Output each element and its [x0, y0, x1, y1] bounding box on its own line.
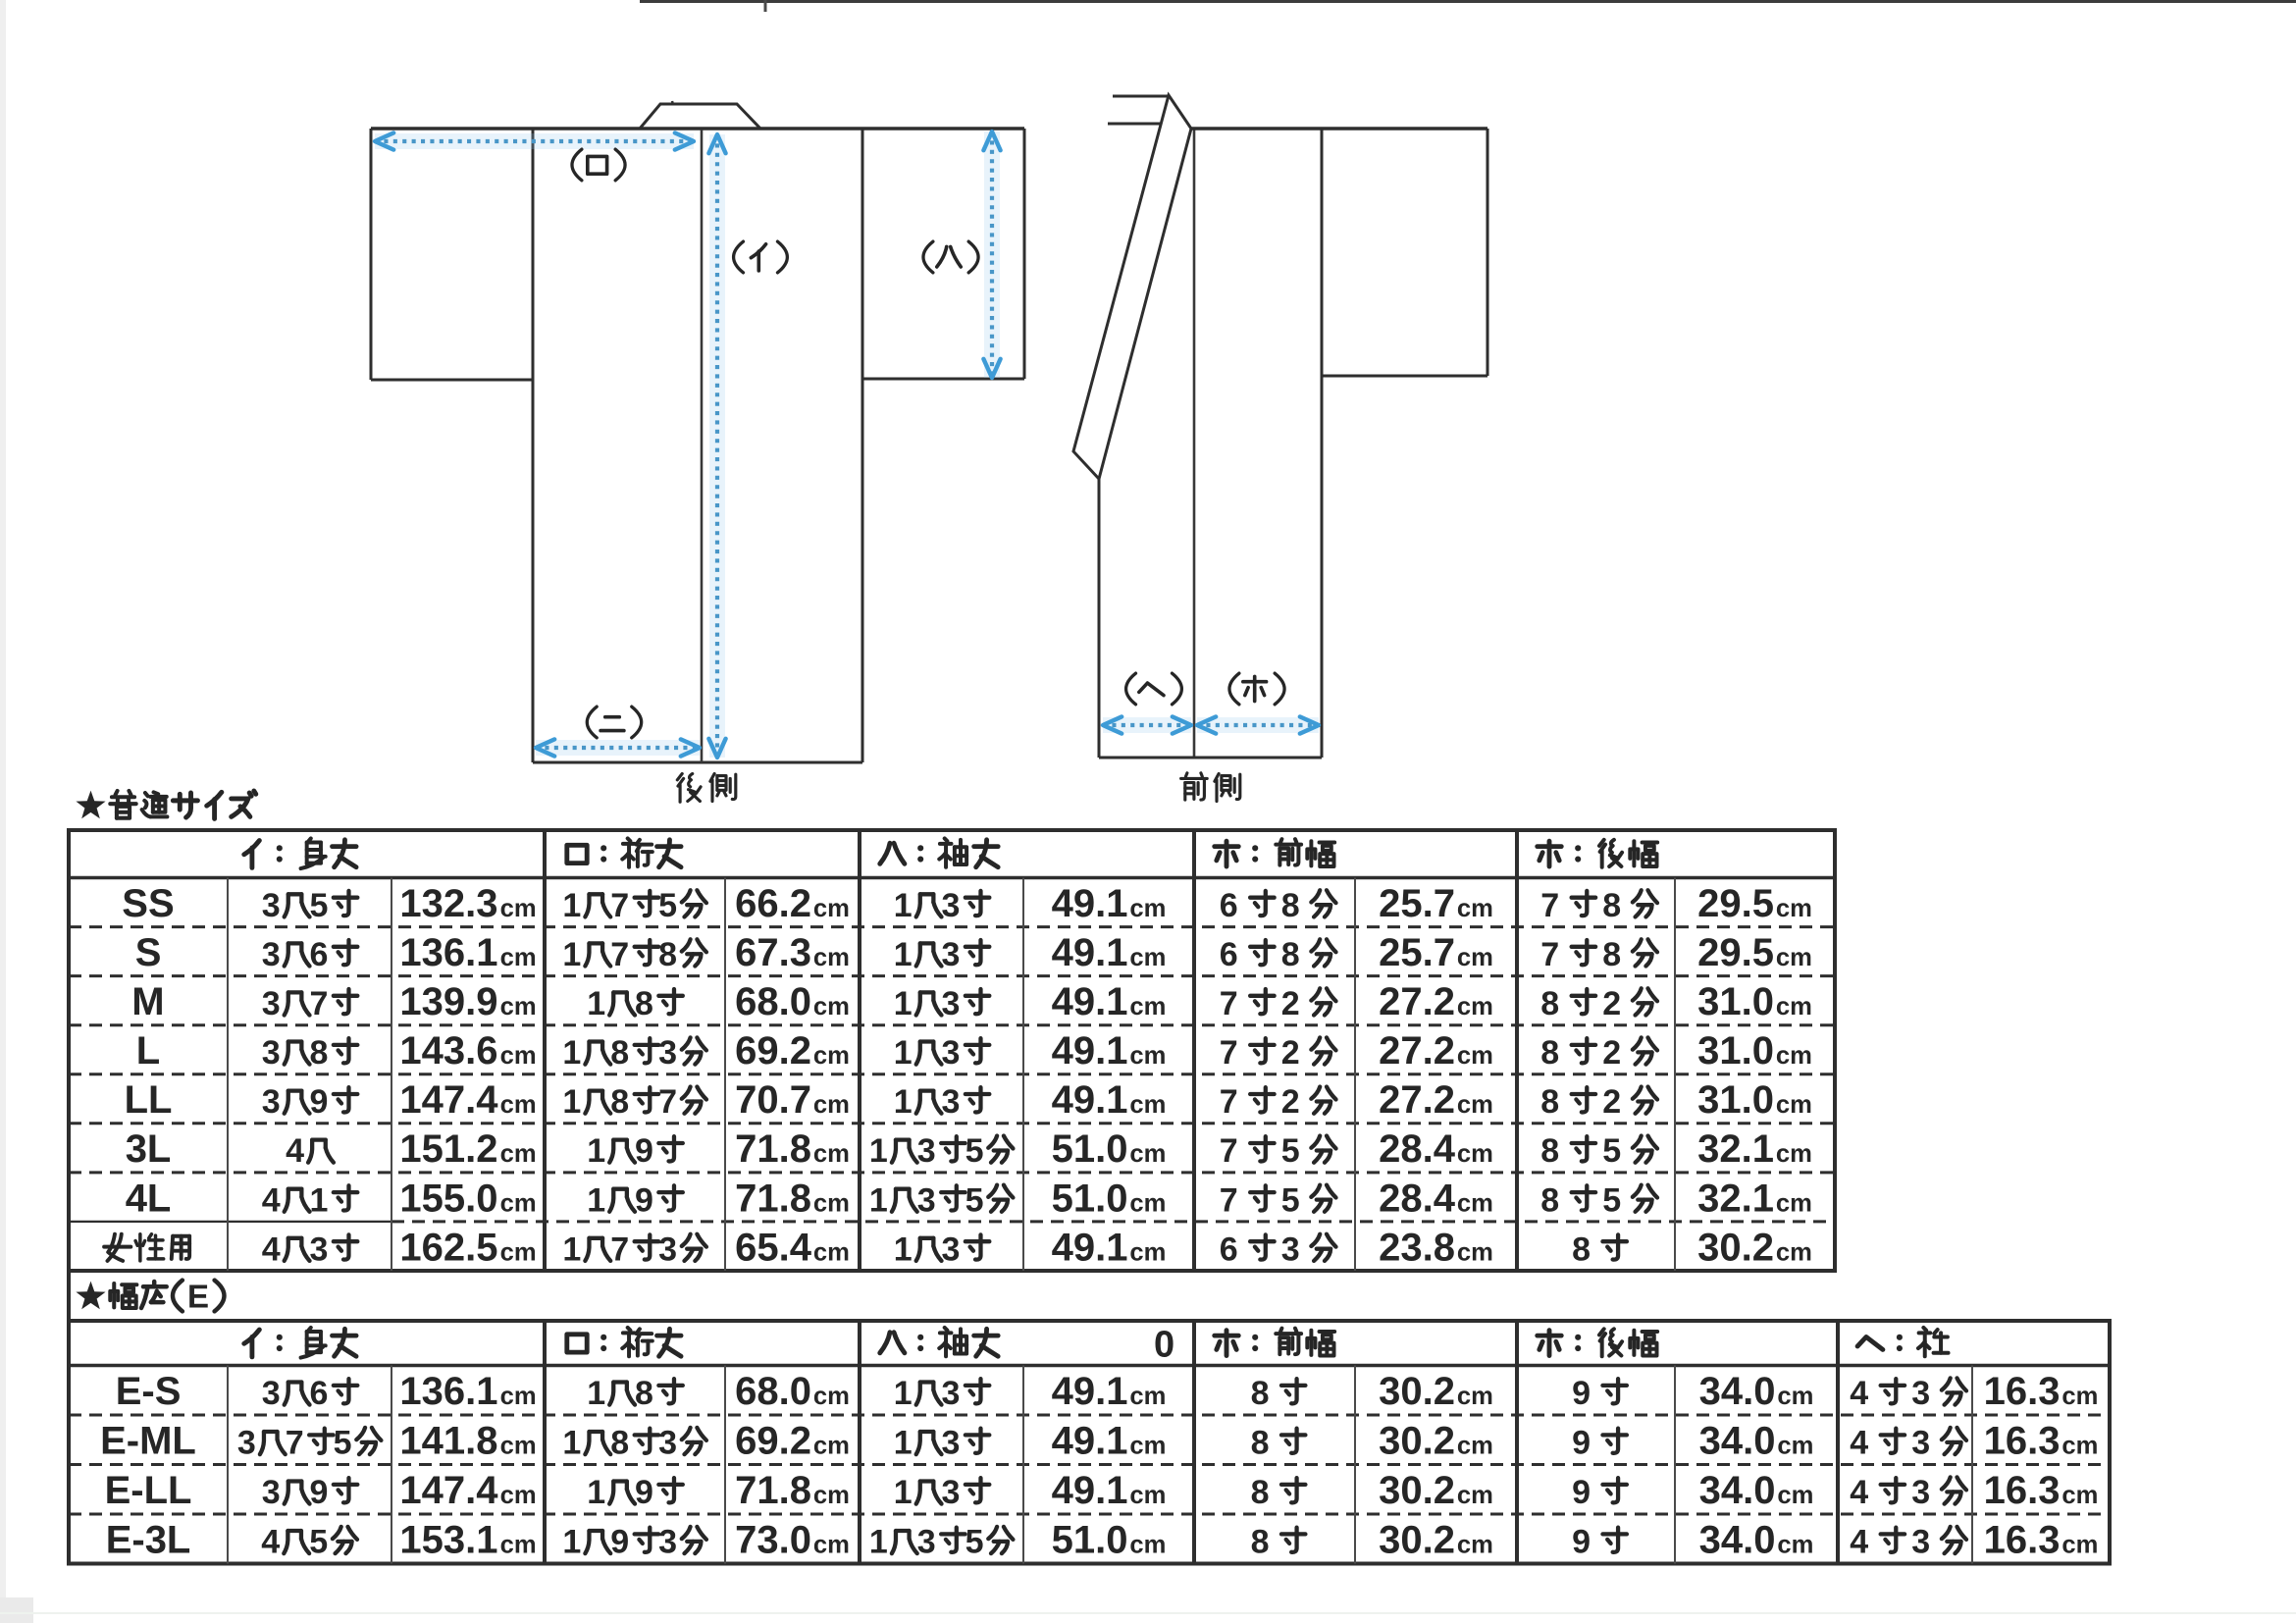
svg-text:1: 1	[587, 1474, 605, 1511]
svg-text:31.0: 31.0	[1697, 1029, 1774, 1073]
svg-text:8: 8	[1540, 1034, 1559, 1072]
svg-text:141.8: 141.8	[399, 1420, 497, 1463]
svg-text:cm: cm	[500, 1383, 537, 1410]
svg-text:2: 2	[1602, 985, 1621, 1022]
svg-text:6: 6	[310, 936, 329, 973]
svg-text:cm: cm	[813, 1532, 850, 1559]
svg-text:1: 1	[894, 985, 913, 1022]
svg-text:cm: cm	[1129, 1091, 1166, 1119]
svg-text:9: 9	[310, 1083, 329, 1121]
svg-text:3: 3	[1911, 1375, 1930, 1412]
svg-text:cm: cm	[1129, 895, 1166, 922]
svg-text:3: 3	[917, 1132, 936, 1170]
svg-text:cm: cm	[813, 895, 850, 922]
svg-text:1: 1	[310, 1181, 329, 1219]
svg-text:3: 3	[262, 985, 281, 1022]
svg-text:28.4: 28.4	[1379, 1177, 1456, 1220]
svg-text:cm: cm	[1129, 1189, 1166, 1217]
svg-text:cm: cm	[1129, 993, 1166, 1021]
svg-text:cm: cm	[1776, 895, 1812, 922]
svg-text:31.0: 31.0	[1697, 1078, 1774, 1122]
svg-text:cm: cm	[1777, 1433, 1813, 1460]
svg-text:7: 7	[658, 1083, 677, 1121]
svg-text:3: 3	[917, 1181, 936, 1219]
svg-text:73.0: 73.0	[735, 1519, 811, 1562]
svg-text:9: 9	[635, 1132, 653, 1170]
svg-text:cm: cm	[1776, 1042, 1812, 1070]
svg-text:4: 4	[262, 1181, 281, 1219]
svg-text:cm: cm	[1129, 1140, 1166, 1168]
svg-text:3: 3	[942, 936, 961, 973]
svg-text:8: 8	[1281, 936, 1300, 973]
svg-text:cm: cm	[500, 1091, 537, 1119]
svg-text:7: 7	[1540, 887, 1559, 924]
svg-text:9: 9	[1572, 1524, 1591, 1561]
svg-text:3: 3	[262, 1375, 281, 1412]
svg-text:4: 4	[286, 1132, 304, 1170]
svg-text:5: 5	[310, 887, 329, 924]
svg-text:cm: cm	[1457, 1238, 1493, 1266]
svg-text:69.2: 69.2	[735, 1029, 811, 1073]
svg-text:5: 5	[1281, 1181, 1300, 1219]
svg-text:cm: cm	[1129, 1482, 1166, 1509]
svg-text:cm: cm	[813, 944, 850, 971]
svg-text:32.1: 32.1	[1697, 1177, 1774, 1220]
svg-text:132.3: 132.3	[399, 882, 497, 925]
svg-text:7: 7	[610, 887, 629, 924]
svg-text:3: 3	[942, 1230, 961, 1268]
svg-text:16.3: 16.3	[1984, 1469, 2061, 1512]
svg-text:cm: cm	[500, 1482, 537, 1509]
svg-text:cm: cm	[813, 1091, 850, 1119]
svg-text:34.0: 34.0	[1699, 1519, 1776, 1562]
svg-text:L: L	[136, 1029, 160, 1073]
svg-text:7: 7	[1220, 1181, 1238, 1219]
svg-text:5: 5	[1281, 1132, 1300, 1170]
svg-text:71.8: 71.8	[735, 1469, 811, 1512]
svg-text:5: 5	[965, 1181, 984, 1219]
svg-text:51.0: 51.0	[1052, 1177, 1128, 1220]
svg-text:9: 9	[635, 1474, 653, 1511]
svg-text:51.0: 51.0	[1052, 1127, 1128, 1171]
svg-text:3: 3	[262, 936, 281, 973]
svg-text:3: 3	[942, 1083, 961, 1121]
svg-text:7: 7	[310, 985, 329, 1022]
svg-text:3: 3	[942, 1375, 961, 1412]
svg-text:30.2: 30.2	[1379, 1420, 1455, 1463]
svg-text:3: 3	[658, 1230, 677, 1268]
svg-text:cm: cm	[500, 1042, 537, 1070]
svg-text:3: 3	[310, 1230, 329, 1268]
svg-text:cm: cm	[2061, 1383, 2098, 1410]
svg-text:7: 7	[1220, 985, 1238, 1022]
svg-text:51.0: 51.0	[1052, 1519, 1128, 1562]
svg-text:cm: cm	[1777, 1383, 1813, 1410]
svg-text:8: 8	[610, 1034, 629, 1072]
svg-text:6: 6	[1220, 887, 1238, 924]
svg-text:34.0: 34.0	[1699, 1370, 1776, 1413]
svg-text:49.1: 49.1	[1052, 1078, 1128, 1122]
svg-text:4: 4	[1850, 1425, 1868, 1462]
svg-text:1: 1	[587, 1132, 605, 1170]
svg-text:34.0: 34.0	[1699, 1469, 1776, 1512]
svg-text:0: 0	[1154, 1324, 1174, 1365]
svg-text:71.8: 71.8	[735, 1177, 811, 1220]
svg-text:3: 3	[262, 1474, 281, 1511]
svg-text:1: 1	[587, 1375, 605, 1412]
svg-text:7: 7	[286, 1425, 304, 1462]
svg-text:1: 1	[562, 1083, 581, 1121]
svg-text:1: 1	[894, 936, 913, 973]
svg-text:1: 1	[894, 1474, 913, 1511]
svg-text:3: 3	[942, 1474, 961, 1511]
svg-text:cm: cm	[1457, 1383, 1493, 1410]
svg-text:1: 1	[894, 1083, 913, 1121]
svg-text:cm: cm	[1777, 1532, 1813, 1559]
svg-text:cm: cm	[1457, 1091, 1493, 1119]
svg-text:9: 9	[610, 1524, 629, 1561]
svg-text:E-3L: E-3L	[106, 1519, 191, 1562]
svg-text:32.1: 32.1	[1697, 1127, 1774, 1171]
svg-text:cm: cm	[1129, 1238, 1166, 1266]
svg-text:cm: cm	[1457, 1042, 1493, 1070]
svg-text:1: 1	[562, 1230, 581, 1268]
svg-text:27.2: 27.2	[1379, 1029, 1455, 1073]
svg-text:49.1: 49.1	[1052, 931, 1128, 974]
svg-text:49.1: 49.1	[1052, 1469, 1128, 1512]
svg-text:1: 1	[869, 1524, 888, 1561]
svg-text:2: 2	[1281, 985, 1300, 1022]
svg-text:1: 1	[894, 1230, 913, 1268]
svg-text:4: 4	[262, 1230, 281, 1268]
svg-text:1: 1	[869, 1181, 888, 1219]
svg-text:3: 3	[917, 1524, 936, 1561]
svg-text:LL: LL	[125, 1078, 173, 1122]
svg-text:cm: cm	[500, 1140, 537, 1168]
svg-text:5: 5	[965, 1524, 984, 1561]
svg-text:27.2: 27.2	[1379, 980, 1455, 1023]
svg-text:28.4: 28.4	[1379, 1127, 1456, 1171]
svg-text:7: 7	[610, 936, 629, 973]
svg-text:67.3: 67.3	[735, 931, 811, 974]
svg-text:6: 6	[1220, 1230, 1238, 1268]
svg-text:cm: cm	[1129, 1433, 1166, 1460]
svg-text:1: 1	[869, 1132, 888, 1170]
svg-text:30.2: 30.2	[1379, 1519, 1455, 1562]
svg-text:49.1: 49.1	[1052, 1029, 1128, 1073]
svg-text:SS: SS	[122, 882, 174, 925]
svg-text:1: 1	[894, 887, 913, 924]
svg-text:27.2: 27.2	[1379, 1078, 1455, 1122]
svg-text:cm: cm	[1457, 895, 1493, 922]
svg-text:16.3: 16.3	[1984, 1420, 2061, 1463]
svg-text:30.2: 30.2	[1379, 1469, 1455, 1512]
svg-text:68.0: 68.0	[735, 1370, 811, 1413]
svg-text:5: 5	[965, 1132, 984, 1170]
svg-text:162.5: 162.5	[399, 1226, 497, 1269]
svg-text:66.2: 66.2	[735, 882, 811, 925]
svg-text:143.6: 143.6	[399, 1029, 497, 1073]
svg-text:139.9: 139.9	[399, 980, 497, 1023]
svg-text:8: 8	[1251, 1474, 1270, 1511]
svg-text:cm: cm	[2061, 1532, 2098, 1559]
svg-text:8: 8	[635, 1375, 653, 1412]
svg-text:3: 3	[1911, 1524, 1930, 1561]
svg-text:155.0: 155.0	[399, 1177, 497, 1220]
svg-text:1: 1	[562, 1425, 581, 1462]
svg-text:cm: cm	[1457, 1140, 1493, 1168]
svg-text:5: 5	[334, 1425, 352, 1462]
svg-text:2: 2	[1281, 1083, 1300, 1121]
svg-text:1: 1	[587, 985, 605, 1022]
svg-text:8: 8	[1540, 1083, 1559, 1121]
svg-text:49.1: 49.1	[1052, 1370, 1128, 1413]
svg-text:6: 6	[1220, 936, 1238, 973]
svg-text:3: 3	[942, 985, 961, 1022]
svg-text:3: 3	[658, 1034, 677, 1072]
svg-text:8: 8	[658, 936, 677, 973]
svg-text:1: 1	[894, 1375, 913, 1412]
svg-text:1: 1	[562, 936, 581, 973]
svg-text:cm: cm	[813, 1383, 850, 1410]
svg-text:2: 2	[1602, 1083, 1621, 1121]
svg-text:cm: cm	[813, 1189, 850, 1217]
svg-text:29.5: 29.5	[1697, 882, 1774, 925]
svg-text:8: 8	[1281, 887, 1300, 924]
svg-text:4: 4	[1850, 1524, 1868, 1561]
svg-text:8: 8	[1251, 1524, 1270, 1561]
svg-text:1: 1	[562, 887, 581, 924]
svg-text:8: 8	[610, 1425, 629, 1462]
svg-text:cm: cm	[813, 1238, 850, 1266]
svg-text:3: 3	[1911, 1425, 1930, 1462]
svg-text:147.4: 147.4	[399, 1469, 498, 1512]
svg-text:2: 2	[1602, 1034, 1621, 1072]
svg-text:cm: cm	[500, 993, 537, 1021]
svg-text:3: 3	[942, 1425, 961, 1462]
svg-text:151.2: 151.2	[399, 1127, 497, 1171]
svg-text:8: 8	[1540, 985, 1559, 1022]
svg-text:7: 7	[1540, 936, 1559, 973]
svg-text:3: 3	[1281, 1230, 1300, 1268]
svg-text:8: 8	[1251, 1425, 1270, 1462]
svg-text:4: 4	[261, 1524, 280, 1561]
svg-text:6: 6	[310, 1375, 329, 1412]
svg-text:1: 1	[894, 1034, 913, 1072]
svg-text:8: 8	[1251, 1375, 1270, 1412]
svg-text:65.4: 65.4	[735, 1226, 812, 1269]
svg-text:cm: cm	[813, 993, 850, 1021]
svg-text:136.1: 136.1	[399, 931, 497, 974]
svg-text:cm: cm	[500, 1189, 537, 1217]
svg-text:7: 7	[610, 1230, 629, 1268]
svg-text:3: 3	[942, 887, 961, 924]
svg-text:E-S: E-S	[116, 1370, 182, 1413]
svg-text:1: 1	[562, 1524, 581, 1561]
svg-text:cm: cm	[1776, 944, 1812, 971]
svg-text:cm: cm	[813, 1433, 850, 1460]
svg-text:49.1: 49.1	[1052, 882, 1128, 925]
svg-text:1: 1	[894, 1425, 913, 1462]
svg-text:cm: cm	[500, 1532, 537, 1559]
svg-text:16.3: 16.3	[1984, 1519, 2061, 1562]
svg-text:30.2: 30.2	[1697, 1226, 1774, 1269]
svg-text:cm: cm	[1777, 1482, 1813, 1509]
svg-text:153.1: 153.1	[399, 1519, 497, 1562]
svg-text:5: 5	[1602, 1181, 1621, 1219]
svg-text:cm: cm	[1129, 1383, 1166, 1410]
svg-text:3: 3	[658, 1425, 677, 1462]
svg-text:8: 8	[635, 985, 653, 1022]
svg-text:4: 4	[1850, 1375, 1868, 1412]
svg-text:30.2: 30.2	[1379, 1370, 1455, 1413]
svg-text:3: 3	[262, 887, 281, 924]
svg-text:9: 9	[635, 1181, 653, 1219]
svg-text:E-LL: E-LL	[105, 1469, 192, 1512]
svg-text:5: 5	[309, 1524, 328, 1561]
svg-text:E: E	[187, 1279, 209, 1315]
svg-text:25.7: 25.7	[1379, 931, 1455, 974]
svg-text:70.7: 70.7	[735, 1078, 811, 1122]
svg-text:4L: 4L	[126, 1177, 172, 1220]
svg-text:3: 3	[262, 1083, 281, 1121]
svg-text:9: 9	[1572, 1425, 1591, 1462]
svg-text:cm: cm	[813, 1140, 850, 1168]
svg-text:cm: cm	[1776, 1091, 1812, 1119]
svg-text:3: 3	[942, 1034, 961, 1072]
svg-text:3: 3	[658, 1524, 677, 1561]
svg-text:cm: cm	[500, 944, 537, 971]
svg-text:136.1: 136.1	[399, 1370, 497, 1413]
svg-text:7: 7	[1220, 1083, 1238, 1121]
svg-text:71.8: 71.8	[735, 1127, 811, 1171]
svg-text:49.1: 49.1	[1052, 980, 1128, 1023]
svg-text:68.0: 68.0	[735, 980, 811, 1023]
svg-text:1: 1	[562, 1034, 581, 1072]
svg-text:29.5: 29.5	[1697, 931, 1774, 974]
svg-text:cm: cm	[813, 1482, 850, 1509]
svg-text:3: 3	[262, 1034, 281, 1072]
svg-text:16.3: 16.3	[1984, 1370, 2061, 1413]
svg-text:2: 2	[1281, 1034, 1300, 1072]
svg-text:cm: cm	[1457, 944, 1493, 971]
svg-text:cm: cm	[1457, 1482, 1493, 1509]
svg-text:49.1: 49.1	[1052, 1226, 1128, 1269]
svg-text:4: 4	[1850, 1474, 1868, 1511]
svg-text:cm: cm	[1776, 993, 1812, 1021]
svg-text:5: 5	[658, 887, 677, 924]
svg-text:7: 7	[1220, 1132, 1238, 1170]
svg-text:8: 8	[1540, 1132, 1559, 1170]
svg-text:8: 8	[1602, 887, 1621, 924]
svg-text:cm: cm	[500, 1238, 537, 1266]
svg-text:cm: cm	[1129, 1042, 1166, 1070]
svg-text:3: 3	[1911, 1474, 1930, 1511]
svg-text:9: 9	[1572, 1474, 1591, 1511]
svg-text:cm: cm	[500, 1433, 537, 1460]
svg-text:cm: cm	[1776, 1189, 1812, 1217]
svg-text:25.7: 25.7	[1379, 882, 1455, 925]
svg-text:cm: cm	[2061, 1482, 2098, 1509]
svg-text:8: 8	[310, 1034, 329, 1072]
svg-text:31.0: 31.0	[1697, 980, 1774, 1023]
svg-text:cm: cm	[1457, 1433, 1493, 1460]
svg-text:cm: cm	[1776, 1140, 1812, 1168]
svg-text:8: 8	[1540, 1181, 1559, 1219]
svg-text:cm: cm	[500, 895, 537, 922]
svg-text:69.2: 69.2	[735, 1420, 811, 1463]
svg-text:9: 9	[1572, 1375, 1591, 1412]
svg-text:8: 8	[610, 1083, 629, 1121]
svg-text:49.1: 49.1	[1052, 1420, 1128, 1463]
svg-text:3: 3	[237, 1425, 256, 1462]
svg-text:M: M	[131, 980, 164, 1023]
svg-text:23.8: 23.8	[1379, 1226, 1455, 1269]
svg-text:3L: 3L	[126, 1127, 172, 1171]
svg-text:S: S	[135, 931, 162, 974]
svg-text:8: 8	[1602, 936, 1621, 973]
svg-text:5: 5	[1602, 1132, 1621, 1170]
svg-text:cm: cm	[1457, 1189, 1493, 1217]
svg-text:147.4: 147.4	[399, 1078, 498, 1122]
svg-text:cm: cm	[2061, 1433, 2098, 1460]
svg-text:cm: cm	[1129, 1532, 1166, 1559]
svg-text:cm: cm	[813, 1042, 850, 1070]
svg-text:cm: cm	[1129, 944, 1166, 971]
svg-text:7: 7	[1220, 1034, 1238, 1072]
svg-text:1: 1	[587, 1181, 605, 1219]
svg-text:cm: cm	[1457, 1532, 1493, 1559]
svg-text:cm: cm	[1457, 993, 1493, 1021]
svg-text:E-ML: E-ML	[100, 1420, 196, 1463]
svg-text:8: 8	[1572, 1230, 1591, 1268]
svg-text:9: 9	[310, 1474, 329, 1511]
svg-text:34.0: 34.0	[1699, 1420, 1776, 1463]
svg-text:cm: cm	[1776, 1238, 1812, 1266]
